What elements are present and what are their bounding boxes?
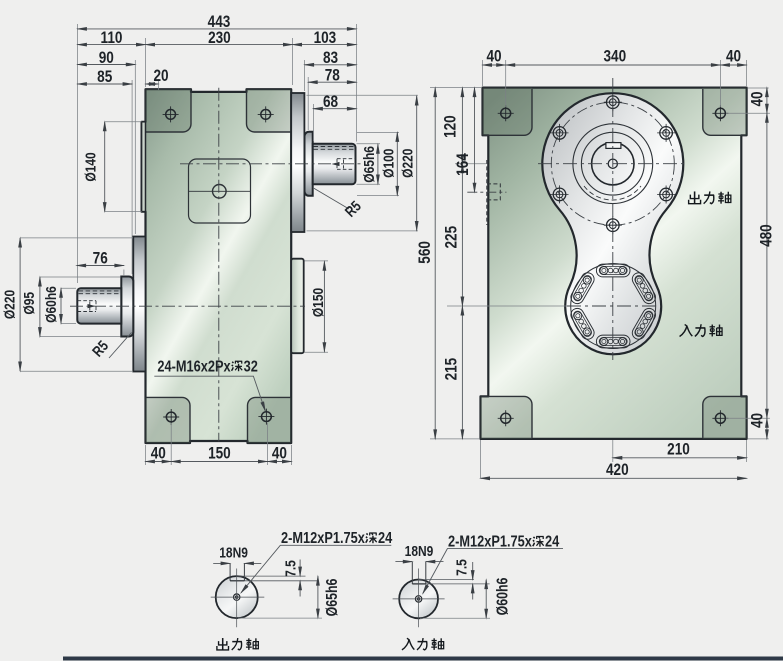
svg-text:Ø150: Ø150: [310, 288, 327, 317]
svg-text:40: 40: [748, 91, 767, 106]
svg-text:Ø60h6: Ø60h6: [493, 577, 511, 615]
svg-text:24: 24: [545, 533, 559, 551]
svg-text:Ø140: Ø140: [82, 152, 99, 181]
svg-text:215: 215: [442, 357, 461, 380]
svg-text:83: 83: [323, 49, 338, 68]
svg-text:Ø100: Ø100: [380, 149, 397, 178]
svg-text:40: 40: [272, 444, 287, 463]
svg-text:Ø220: Ø220: [399, 149, 416, 178]
svg-text:2-M12xP1.75x: 2-M12xP1.75x: [448, 533, 532, 551]
svg-text:7.5: 7.5: [282, 560, 299, 577]
svg-text:24-M16x2Px: 24-M16x2Px: [157, 358, 230, 376]
svg-text:85: 85: [97, 68, 113, 87]
svg-text:560: 560: [415, 241, 434, 264]
svg-text:420: 420: [606, 461, 629, 480]
svg-text:150: 150: [208, 444, 231, 463]
svg-text:103: 103: [314, 29, 337, 48]
svg-text:18N9: 18N9: [219, 544, 248, 561]
svg-text:18N9: 18N9: [405, 543, 434, 560]
svg-text:90: 90: [99, 48, 114, 67]
svg-text:480: 480: [757, 224, 776, 247]
svg-text:Ø65h6: Ø65h6: [361, 146, 378, 183]
svg-text:40: 40: [748, 413, 767, 428]
svg-text:340: 340: [603, 47, 626, 66]
svg-text:Ø65h6: Ø65h6: [323, 578, 341, 616]
svg-text:20: 20: [153, 67, 168, 86]
svg-text:230: 230: [208, 29, 231, 48]
svg-text:40: 40: [726, 47, 741, 66]
svg-text:225: 225: [442, 225, 461, 248]
svg-text:32: 32: [244, 358, 258, 376]
svg-text:40: 40: [486, 47, 501, 66]
svg-text:Ø60h6: Ø60h6: [43, 286, 60, 323]
svg-text:40: 40: [151, 444, 166, 463]
svg-text:24: 24: [378, 530, 392, 548]
svg-text:164: 164: [454, 153, 473, 176]
svg-text:Ø220: Ø220: [1, 290, 18, 319]
svg-text:2-M12xP1.75x: 2-M12xP1.75x: [281, 530, 365, 548]
svg-text:7.5: 7.5: [453, 559, 470, 576]
svg-text:78: 78: [325, 66, 341, 85]
svg-text:210: 210: [667, 440, 690, 459]
svg-text:120: 120: [441, 115, 460, 138]
svg-text:Ø95: Ø95: [21, 292, 38, 315]
svg-text:76: 76: [93, 249, 108, 268]
svg-text:110: 110: [101, 29, 123, 48]
svg-text:68: 68: [323, 93, 339, 112]
